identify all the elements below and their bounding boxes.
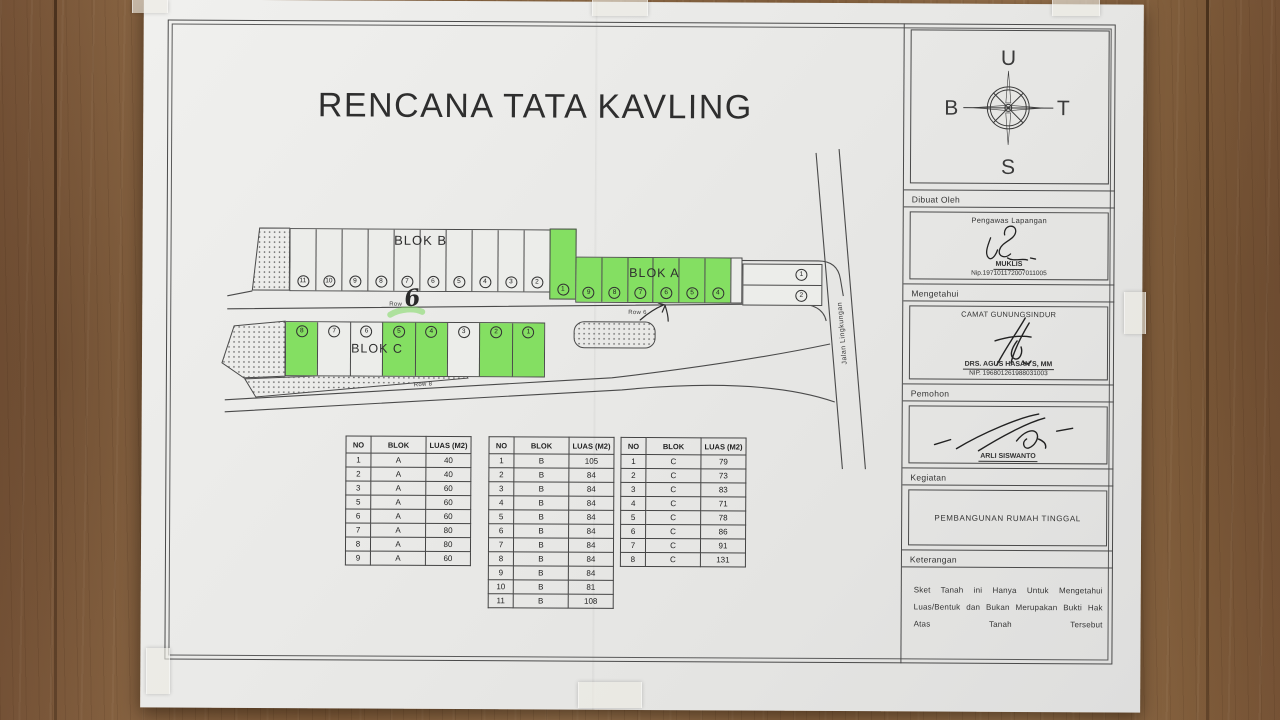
table-cell: 11	[488, 594, 513, 608]
table-row: 7B84	[488, 538, 613, 553]
tape	[146, 648, 170, 694]
table-row: 2B84	[489, 468, 614, 483]
table-row: 8B84	[488, 552, 613, 567]
plot-number: 5	[686, 287, 698, 299]
kegiatan-box: PEMBANGUNAN RUMAH TINGGAL	[908, 489, 1107, 546]
table-cell: B	[514, 496, 569, 510]
table-cell: C	[646, 469, 701, 483]
plot-blok-a-1: 1	[743, 265, 821, 285]
row-6-label: Row	[389, 302, 402, 308]
table-cell: B	[514, 468, 569, 482]
plot-number: 5	[393, 326, 405, 338]
table-cell: A	[371, 509, 426, 523]
pemohon-name: ARLI SISWANTO	[909, 452, 1106, 460]
table-cell: 131	[700, 553, 745, 567]
section-header-dibuat-oleh: Dibuat Oleh	[904, 189, 1115, 208]
table-cell: B	[513, 566, 568, 580]
table-cell: 79	[701, 455, 746, 469]
plot-blok-b-3: 3	[497, 230, 523, 291]
plot-number: 10	[323, 275, 335, 287]
table-cell: 3	[346, 481, 371, 495]
table-cell: C	[646, 497, 701, 511]
table-header-cell: BLOK	[646, 438, 701, 455]
table-cell: 6	[489, 524, 514, 538]
table-cell: 84	[569, 510, 614, 524]
table-cell: 40	[426, 453, 471, 467]
table-cell: 2	[621, 468, 646, 482]
table-cell: 78	[701, 511, 746, 525]
table-row: 5A60	[346, 495, 471, 510]
table-cell: 60	[426, 509, 471, 523]
road-name-label: Jalan Lingkungan	[837, 302, 849, 365]
table-row: 6A60	[346, 509, 471, 524]
table-cell: 80	[426, 523, 471, 537]
compass-south-label: S	[1001, 156, 1015, 179]
table-header-cell: LUAS (M2)	[426, 436, 471, 453]
tape	[592, 0, 648, 16]
table-cell: A	[371, 523, 426, 537]
table-cell: 7	[488, 538, 513, 552]
table-header-cell: NO	[621, 437, 646, 454]
blok-a-side-plots: 12	[742, 264, 822, 306]
table-cell: 60	[426, 481, 471, 495]
table-cell: 86	[701, 525, 746, 539]
row-8-label: Row 8	[414, 381, 433, 388]
table-row: 3C83	[621, 482, 746, 497]
table-cell: C	[646, 525, 701, 539]
roads	[224, 146, 867, 469]
table-row: 9B84	[488, 566, 613, 581]
compass-box: U S B T	[910, 29, 1110, 184]
table-row: 2C73	[621, 468, 746, 483]
table-blok-c: NOBLOKLUAS (M2)1C792C733C834C715C786C867…	[620, 437, 747, 568]
table-cell: B	[513, 594, 568, 608]
table-row: 1C79	[621, 454, 746, 469]
section-header-pemohon: Pemohon	[903, 383, 1114, 402]
plot-number: 6	[660, 287, 672, 299]
blok-c-label: BLOK C	[327, 341, 427, 356]
table-cell: A	[370, 537, 425, 551]
table-blok-b: NOBLOKLUAS (M2)1B1052B843B844B845B846B84…	[488, 436, 615, 609]
pengawas-nip: Nip.197101172007011005	[910, 269, 1107, 277]
table-cell: 5	[489, 510, 514, 524]
table-cell: 105	[569, 454, 614, 468]
plot-number: 2	[795, 289, 807, 301]
table-cell: 6	[346, 509, 371, 523]
tape	[578, 682, 642, 708]
plot-blok-c-3: 3	[447, 323, 480, 376]
table-cell: 91	[700, 539, 745, 553]
table-row: 5C78	[621, 510, 746, 525]
wood-plank-seam	[54, 0, 57, 720]
table-row: 1A40	[346, 453, 471, 468]
table-row: 7C91	[620, 538, 745, 553]
plot-blok-b-11: 11	[290, 229, 315, 290]
kegiatan-content: PEMBANGUNAN RUMAH TINGGAL	[909, 490, 1106, 545]
section-header-keterangan: Keterangan	[902, 549, 1113, 568]
table-cell: B	[513, 552, 568, 566]
table-cell: 84	[568, 538, 613, 552]
photo-of-site-plan-document: RENCANA TATA KAVLING	[0, 0, 1280, 720]
plot-number: 8	[375, 276, 387, 288]
table-cell: 40	[426, 467, 471, 481]
table-row: 4C71	[621, 496, 746, 511]
table-cell: B	[514, 510, 569, 524]
table-row: 1B105	[489, 454, 614, 469]
table-cell: 60	[426, 495, 471, 509]
table-cell: 4	[489, 496, 514, 510]
table-cell: 7	[620, 538, 645, 552]
table-row: 3A60	[346, 481, 471, 496]
table-header-cell: BLOK	[514, 437, 569, 454]
plot-number: 11	[297, 275, 309, 287]
table-cell: 8	[345, 537, 370, 551]
table-cell: 7	[346, 523, 371, 537]
table-cell: 3	[489, 482, 514, 496]
table-cell: A	[371, 467, 426, 481]
table-cell: C	[645, 539, 700, 553]
table-cell: A	[371, 481, 426, 495]
table-header-cell: NO	[489, 437, 514, 454]
pengawas-signature-box: Pengawas Lapangan MUKLIS Nip.19710117200…	[909, 211, 1108, 280]
table-cell: 108	[568, 594, 613, 608]
camat-nip: NIP. 196801261988031003	[910, 369, 1107, 377]
table-cell: B	[514, 524, 569, 538]
plot-number: 1	[522, 326, 534, 338]
table-cell: 1	[489, 454, 514, 468]
table-cell: 8	[488, 552, 513, 566]
table-cell: 10	[488, 580, 513, 594]
table-row: 9A60	[345, 551, 470, 566]
table-cell: A	[371, 453, 426, 467]
table-cell: 8	[620, 552, 645, 566]
camat-name: DRS. AGUS HASAN S, MM	[910, 360, 1107, 368]
plot-number: 7	[634, 287, 646, 299]
plot-blok-b-10: 10	[315, 229, 341, 290]
section-header-mengetahui: Mengetahui	[903, 283, 1114, 302]
plot-number: 4	[712, 287, 724, 299]
blok-b-label: BLOK B	[351, 232, 491, 248]
table-cell: A	[371, 495, 426, 509]
plot-blok-b-1: 1	[549, 229, 576, 300]
plot-number: 9	[583, 287, 595, 299]
plot-number: 6	[427, 276, 439, 288]
plot-number: 2	[531, 276, 543, 288]
blok-a-label: BLOK A	[584, 266, 724, 281]
table-cell: C	[646, 455, 701, 469]
plot-number: 4	[479, 276, 491, 288]
table-header-cell: BLOK	[371, 436, 426, 453]
table-cell: 3	[621, 482, 646, 496]
plot-number: 3	[458, 326, 470, 338]
table-cell: C	[645, 553, 700, 567]
table-cell: 9	[488, 566, 513, 580]
plot-blok-c-8: 8	[286, 322, 318, 375]
plot-number: 6	[361, 326, 373, 338]
table-cell: 5	[346, 495, 371, 509]
table-row: 10B81	[488, 580, 613, 595]
table-cell: A	[370, 551, 425, 565]
table-cell: 84	[568, 566, 613, 580]
pengawas-name: MUKLIS	[910, 260, 1107, 268]
table-cell: C	[646, 483, 701, 497]
table-cell: 84	[569, 496, 614, 510]
plot-number: 8	[609, 287, 621, 299]
row-6-label-a: Row 6	[628, 310, 647, 316]
plot-blok-b-2: 2	[523, 230, 549, 291]
table-row: 4B84	[489, 496, 614, 511]
signature-pengawas	[974, 221, 1044, 265]
table-header-cell: NO	[346, 436, 371, 453]
compass-rose: U S B T	[911, 30, 1112, 181]
table-blok-a: NOBLOKLUAS (M2)1A402A403A605A606A607A808…	[345, 435, 472, 566]
handwritten-row-number: 6	[403, 284, 422, 313]
plot-number: 9	[349, 275, 361, 287]
plot-number: 1	[795, 269, 807, 281]
table-header-cell: LUAS (M2)	[569, 437, 614, 454]
pemohon-signature-box: ARLI SISWANTO	[908, 405, 1107, 464]
title-block-column: U S B T Dibuat Oleh Pengawas Lapangan MU…	[900, 23, 1115, 664]
table-row: 3B84	[489, 482, 614, 497]
table-cell: 4	[621, 496, 646, 510]
table-cell: 6	[621, 524, 646, 538]
compass-west-label: B	[944, 97, 958, 120]
tape	[132, 0, 168, 13]
table-cell: 2	[346, 467, 371, 481]
table-cell: 84	[569, 468, 614, 482]
tape	[1052, 0, 1100, 16]
table-row: 5B84	[489, 510, 614, 525]
plot-blok-a-2: 2	[743, 285, 821, 305]
plot-number: 4	[425, 326, 437, 338]
table-header-cell: LUAS (M2)	[701, 438, 746, 455]
table-cell: B	[513, 538, 568, 552]
plot-number: 1	[557, 284, 569, 296]
compass-east-label: T	[1057, 97, 1070, 120]
plot-blok-c-2: 2	[479, 323, 512, 376]
camat-signature-box: CAMAT GUNUNGSINDUR DRS. AGUS HASAN S, MM…	[909, 305, 1108, 380]
plot-number: 8	[296, 325, 308, 337]
table-cell: B	[513, 580, 568, 594]
signature-pemohon	[928, 408, 1088, 455]
table-cell: 9	[345, 551, 370, 565]
table-cell: 60	[425, 551, 470, 565]
compass-north-label: U	[1001, 47, 1016, 70]
wood-plank-seam	[1206, 0, 1209, 720]
table-row: 6B84	[489, 524, 614, 539]
table-row: 8A80	[345, 537, 470, 552]
table-cell: 84	[568, 552, 613, 566]
plot-number: 3	[505, 276, 517, 288]
table-cell: C	[646, 511, 701, 525]
table-row: 8C131	[620, 552, 745, 567]
table-cell: 1	[346, 453, 371, 467]
plan-sheet: RENCANA TATA KAVLING	[140, 0, 1144, 713]
plot-blok-a-sliver	[730, 257, 742, 303]
table-cell: B	[514, 482, 569, 496]
table-row: 2A40	[346, 467, 471, 482]
plot-number: 5	[453, 276, 465, 288]
table-cell: 1	[621, 454, 646, 468]
table-cell: 84	[569, 482, 614, 496]
keterangan-note: Sket Tanah ini Hanya Untuk Mengetahui Lu…	[902, 567, 1113, 634]
table-cell: 83	[701, 483, 746, 497]
table-cell: 81	[568, 580, 613, 594]
table-cell: 84	[569, 524, 614, 538]
table-cell: 80	[425, 537, 470, 551]
table-cell: 73	[701, 469, 746, 483]
plot-blok-c-1: 1	[512, 323, 545, 376]
table-cell: 2	[489, 468, 514, 482]
tape	[1124, 292, 1146, 334]
table-cell: 5	[621, 510, 646, 524]
table-cell: B	[514, 454, 569, 468]
table-cell: 71	[701, 497, 746, 511]
section-header-kegiatan: Kegiatan	[902, 467, 1113, 486]
plot-number: 7	[328, 325, 340, 337]
plot-number: 2	[490, 326, 502, 338]
table-row: 11B108	[488, 594, 613, 609]
table-row: 7A80	[346, 523, 471, 538]
table-row: 6C86	[621, 524, 746, 539]
